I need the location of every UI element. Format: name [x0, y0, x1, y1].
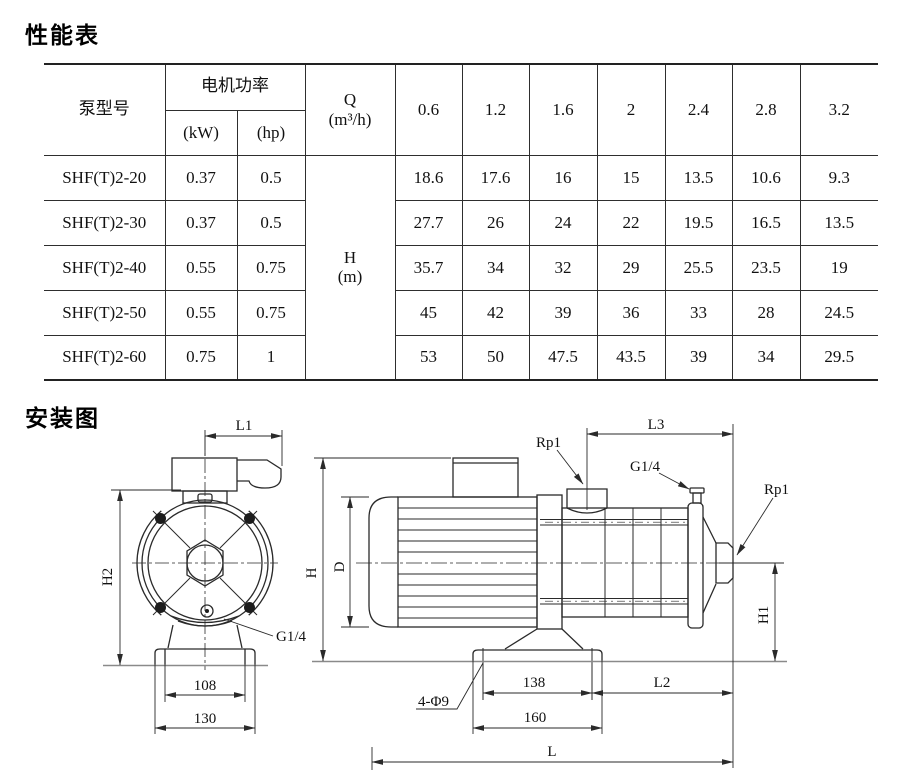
label-holes: 4-Φ9	[418, 694, 449, 710]
end-casing	[688, 503, 703, 628]
label-rp1-top: Rp1	[536, 435, 561, 451]
clamp-bolt	[244, 602, 255, 613]
motor-end-cap	[369, 497, 398, 627]
vent-plug-cap	[690, 488, 704, 493]
front-conduit-connector	[237, 460, 281, 488]
label-g14-front: G1/4	[276, 629, 307, 645]
drain-plug-dot	[205, 609, 209, 613]
label-160: 160	[524, 710, 547, 726]
label-l1: L1	[236, 418, 253, 434]
side-terminal-box	[453, 458, 518, 497]
side-view-dimensions	[314, 424, 784, 770]
label-g14-side: G1/4	[630, 459, 661, 475]
side-base-plate	[473, 650, 602, 661]
clamp-bolt	[155, 513, 166, 524]
pump-stage-stack	[562, 508, 688, 617]
label-d: D	[332, 561, 348, 572]
support-foot-diagonals	[505, 629, 583, 649]
side-view	[312, 458, 787, 700]
label-138: 138	[523, 675, 546, 691]
label-l: L	[547, 744, 556, 760]
clamp-bolt	[155, 602, 166, 613]
installation-diagram: L1 H2 G1/4 108 130	[0, 0, 900, 775]
label-l3: L3	[648, 417, 665, 433]
label-h1: H1	[756, 606, 772, 624]
rp1-right-leader	[737, 498, 773, 555]
clamp-bolt	[244, 513, 255, 524]
base-bolt-hole-lines	[483, 648, 592, 700]
g14-side-leader	[659, 473, 689, 489]
front-view	[103, 436, 281, 670]
tie-rod-centerlines	[545, 522, 685, 601]
motor-pump-adapter	[537, 495, 562, 629]
end-cone	[703, 517, 716, 613]
label-rp1-right: Rp1	[764, 482, 789, 498]
label-108: 108	[194, 678, 217, 694]
label-130: 130	[194, 711, 217, 727]
stage-divider-lines	[605, 508, 661, 617]
label-l2: L2	[654, 675, 671, 691]
rp1-top-leader	[557, 450, 583, 484]
front-terminal-box	[172, 458, 237, 491]
label-h: H	[304, 567, 320, 578]
g14-left-leader	[224, 619, 273, 636]
label-h2: H2	[100, 568, 116, 586]
vent-plug-body	[693, 493, 701, 503]
